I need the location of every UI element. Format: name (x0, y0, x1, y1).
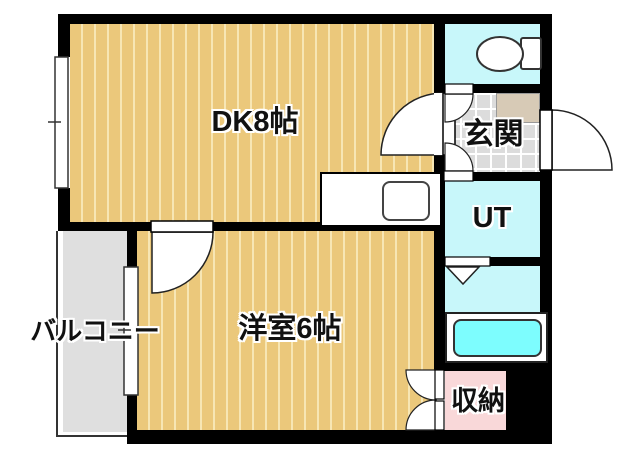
label-utility: UT (442, 204, 542, 233)
door-leaf-western-room (151, 221, 213, 232)
door-arc-dk-entrance (381, 93, 443, 155)
door-leaf-toilet (445, 84, 473, 94)
label-western-room: 洋室6帖 (215, 315, 365, 344)
label-entrance: 玄関 (441, 120, 546, 150)
door-arc-front-entrance (552, 110, 612, 170)
folding-door-mark-bath (447, 267, 479, 284)
label-dk: DK8帖 (180, 108, 330, 137)
folding-door-leaf-bath (445, 257, 490, 266)
toilet-icon (477, 37, 541, 71)
door-leaf-utility (444, 171, 473, 181)
label-balcony: バルコニー (15, 318, 175, 344)
floor-plan: DK8帖 洋室6帖 玄関 UT 収納 バルコニー (0, 0, 640, 456)
door-arc-western-room (152, 232, 213, 293)
label-storage: 収納 (428, 388, 528, 415)
doors-windows-layer (0, 0, 640, 456)
